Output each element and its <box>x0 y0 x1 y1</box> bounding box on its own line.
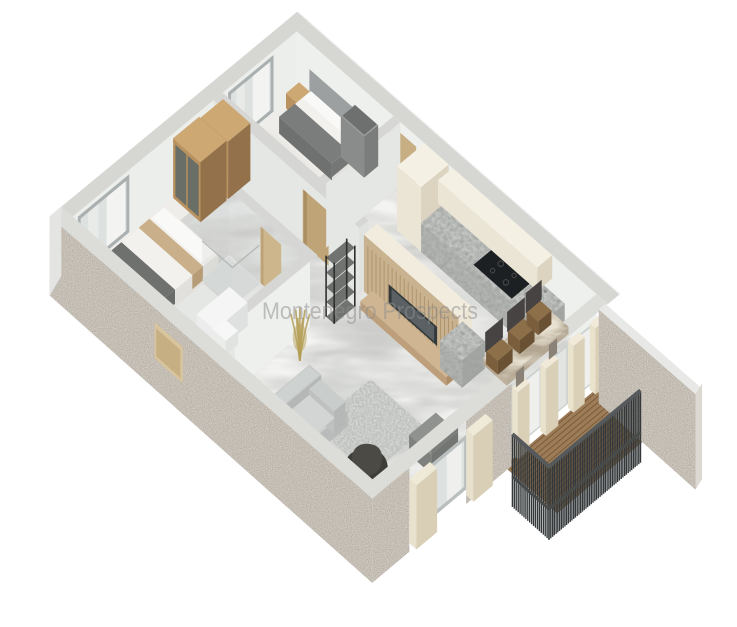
svg-text:Montenegro Prospects: Montenegro Prospects <box>262 298 478 325</box>
